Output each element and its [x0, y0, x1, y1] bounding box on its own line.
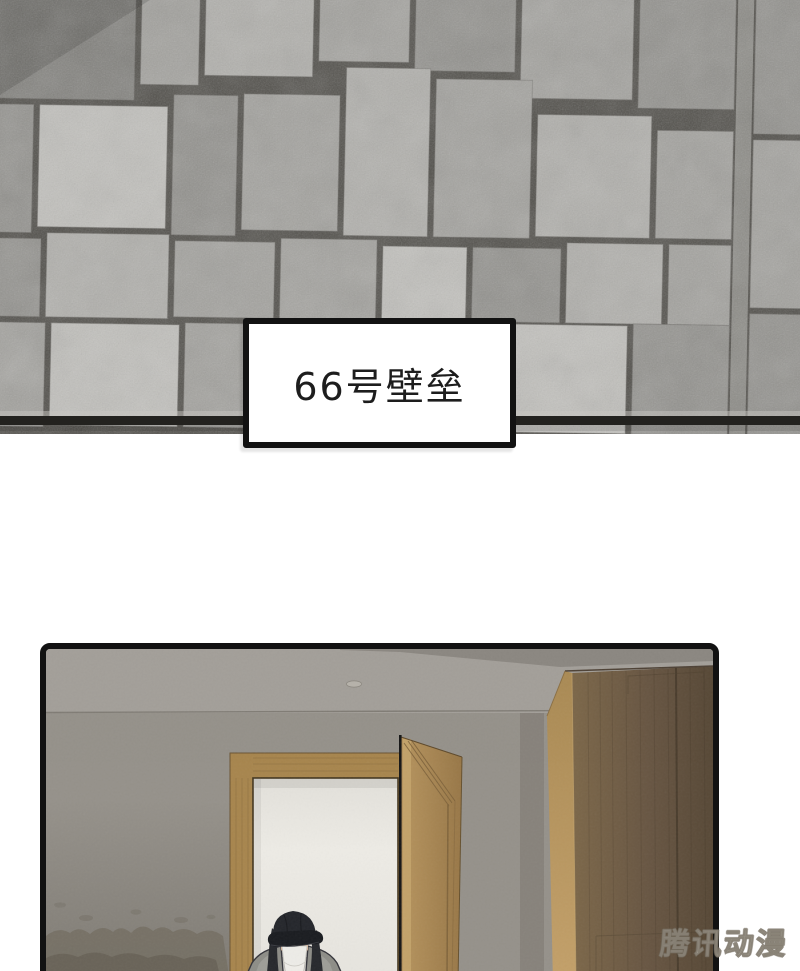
- comic-page: 66号壁垒: [0, 0, 800, 971]
- caption-text: 66号壁垒: [293, 356, 465, 411]
- scene-panel: [40, 643, 719, 971]
- watermark: 腾讯动漫: [642, 919, 800, 963]
- room-scene: [46, 649, 713, 971]
- caption-box: 66号壁垒: [243, 318, 516, 448]
